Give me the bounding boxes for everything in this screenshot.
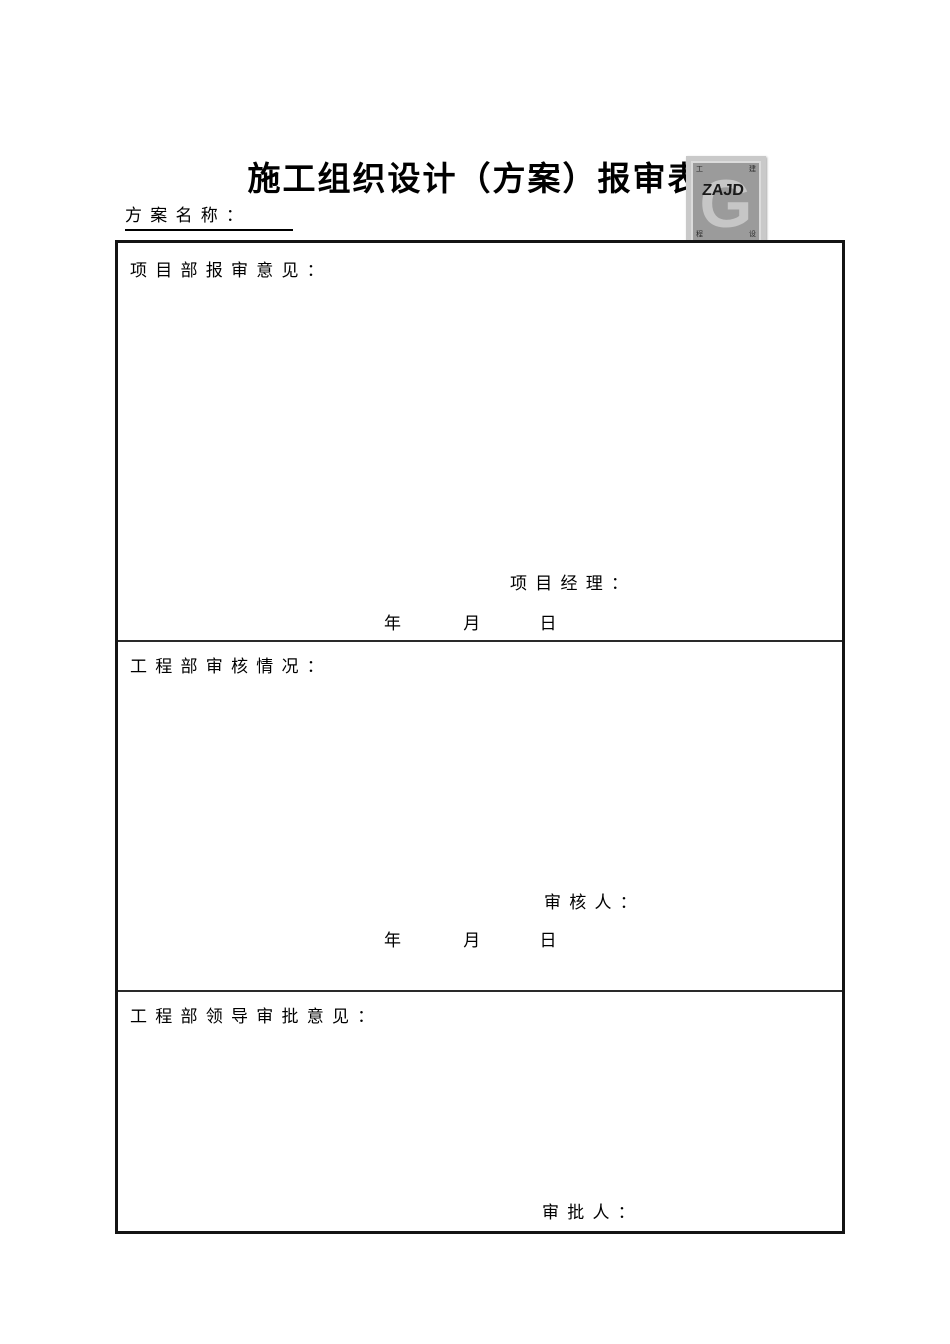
stamp-zajd-text: ZAJD — [702, 182, 745, 200]
day-label: 日 — [540, 614, 557, 633]
opinion-blank-area[interactable] — [124, 288, 836, 558]
stamp-corner-char-top-right: 建 — [749, 166, 756, 173]
section-header-engineering-review: 工 程 部 审 核 情 况 ： — [130, 652, 326, 677]
document-title: 施工组织设计（方案）报审表 — [0, 152, 950, 200]
section-header-project-dept: 项 目 部 报 审 意 见 ： — [130, 256, 326, 281]
approver-signature-label: 审 批 人 ： — [542, 1198, 637, 1223]
section-header-leader-approval: 工 程 部 领 导 审 批 意 见 ： — [130, 1002, 376, 1027]
approval-blank-area[interactable] — [124, 1034, 836, 1189]
document-page: 施工组织设计（方案）报审表 G ZAJD 工 建 程 设 方 案 名 称 ： 项… — [0, 0, 950, 1344]
stamp-corner-char-bottom-left: 程 — [696, 231, 703, 238]
reviewer-signature-label: 审 核 人 ： — [544, 888, 639, 913]
stamp-corner-char-bottom-right: 设 — [749, 231, 756, 238]
section-leader-approval-opinion: 工 程 部 领 导 审 批 意 见 ： 审 批 人 ： — [118, 990, 842, 1231]
date-line: 年 月 日 — [384, 926, 557, 951]
month-label: 月 — [463, 614, 480, 633]
year-label: 年 — [384, 614, 401, 633]
review-blank-area[interactable] — [124, 684, 836, 879]
day-label: 日 — [540, 931, 557, 950]
stamp-corner-char-top-left: 工 — [696, 166, 703, 173]
month-label: 月 — [463, 931, 480, 950]
zajd-stamp-logo: G ZAJD 工 建 程 设 — [686, 156, 766, 248]
year-label: 年 — [384, 931, 401, 950]
form-table: 项 目 部 报 审 意 见 ： 项 目 经 理 ： 年 月 日 工 程 部 审 … — [115, 240, 845, 1234]
stamp-inner-frame: G ZAJD 工 建 程 设 — [691, 161, 761, 243]
section-project-dept-opinion: 项 目 部 报 审 意 见 ： 项 目 经 理 ： 年 月 日 — [118, 243, 842, 640]
stamp-g-letter-icon: G — [700, 170, 753, 238]
plan-name-label: 方 案 名 称 ： — [125, 201, 293, 231]
project-manager-signature-label: 项 目 经 理 ： — [510, 569, 630, 594]
date-line: 年 月 日 — [384, 609, 557, 634]
section-engineering-dept-review: 工 程 部 审 核 情 况 ： 审 核 人 ： 年 月 日 — [118, 640, 842, 990]
